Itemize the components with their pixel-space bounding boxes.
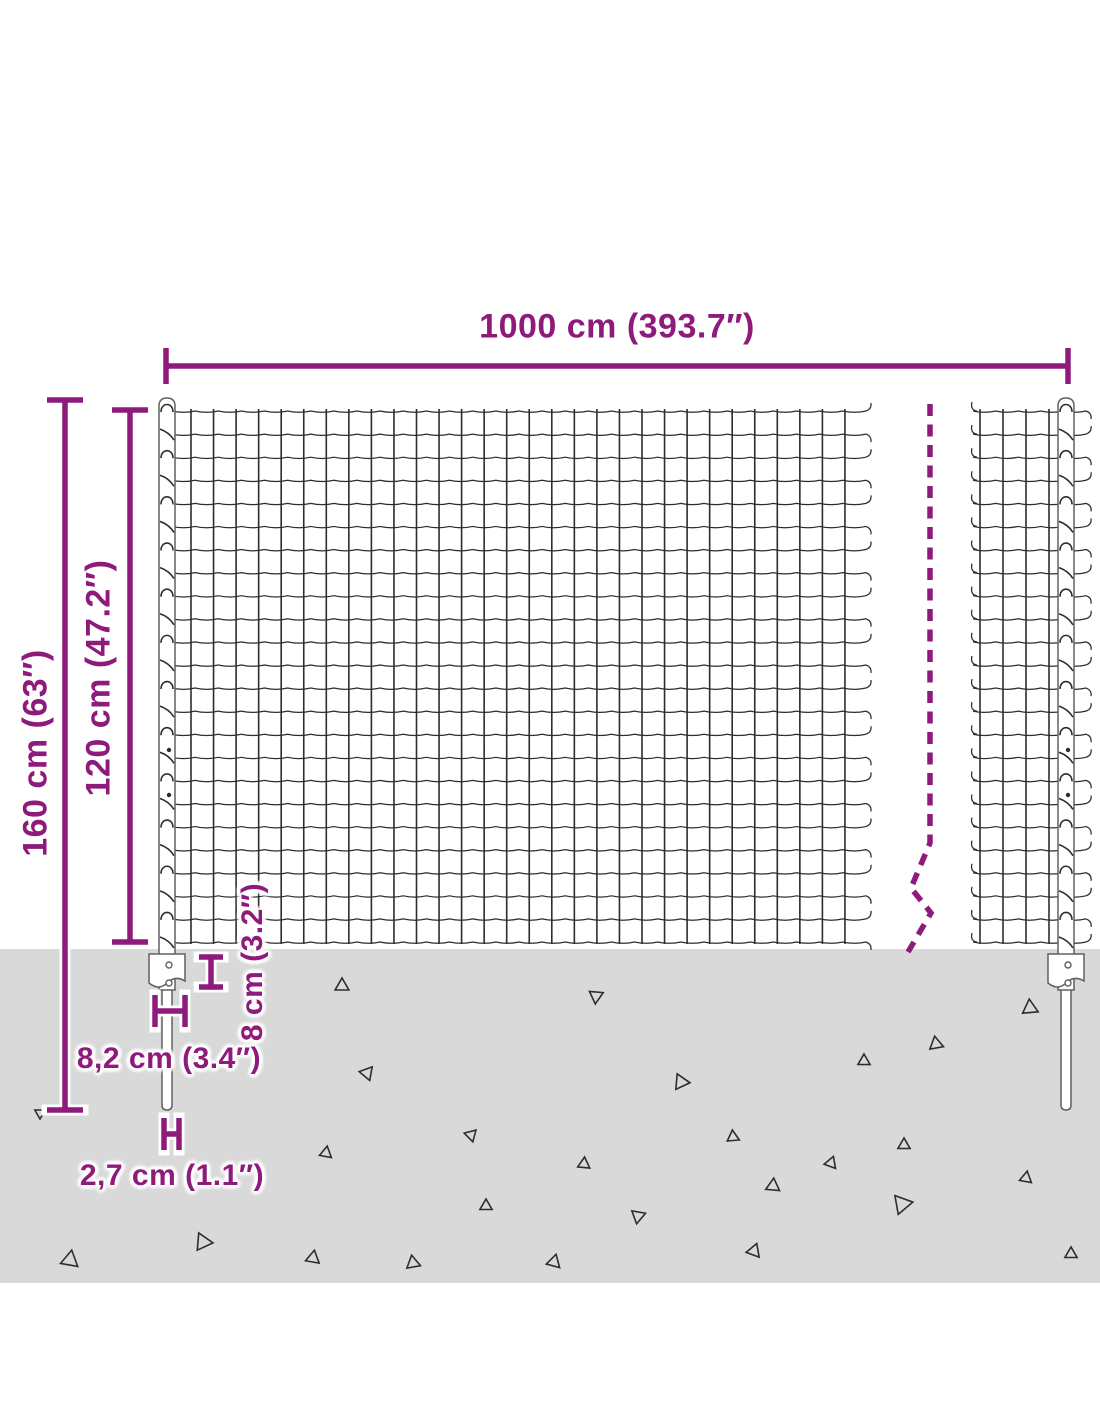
anchor-plate-hole [1065, 980, 1071, 986]
mesh-wire-horizontal [172, 588, 871, 597]
fence-dimension-diagram: 1000 cm (393.7″) 160 cm (63″) 120 cm (47… [0, 0, 1100, 1422]
anchor-plate-hole [166, 980, 172, 986]
diagram-drawing [0, 0, 1100, 1422]
post-hole-dot [1066, 748, 1070, 752]
post-hole-dot [1066, 793, 1070, 797]
mesh-wire-horizontal [172, 573, 871, 581]
fence-post [1058, 398, 1074, 990]
mesh-wire-horizontal [172, 403, 871, 412]
anchor-plate-hole [1065, 962, 1071, 968]
mesh-wire-horizontal [172, 850, 871, 858]
mesh-wire-horizontal [172, 942, 871, 950]
mesh-wire-horizontal [172, 665, 871, 673]
mesh-wire-horizontal [172, 896, 871, 904]
post-hole-dot [167, 793, 171, 797]
anchor-plate-hole [166, 962, 172, 968]
mesh-wire-horizontal [172, 911, 871, 920]
mesh-wire-horizontal [172, 757, 871, 765]
mesh-wire-horizontal [172, 434, 871, 442]
mesh-wire-horizontal [172, 495, 871, 504]
mesh-wire-horizontal [172, 711, 871, 719]
post-ground-spike [1061, 982, 1071, 1110]
dim-label-anchor-plate-height: 8 cm (3.2″) [236, 883, 270, 1041]
mesh-wire-horizontal [172, 772, 871, 781]
mesh-wire-horizontal [172, 726, 871, 735]
mesh-wire-horizontal [172, 803, 871, 811]
dim-label-total-height: 160 cm (63″) [17, 649, 56, 857]
mesh-wire-horizontal [172, 634, 871, 643]
post-hole-dot [167, 748, 171, 752]
dim-label-total-width: 1000 cm (393.7″) [479, 308, 755, 347]
mesh-wire-horizontal [172, 819, 871, 828]
dim-label-spike-width: 2,7 cm (1.1″) [80, 1159, 264, 1193]
mesh-wire-horizontal [172, 619, 871, 627]
mesh-wire-horizontal [172, 542, 871, 551]
dim-label-mesh-height: 120 cm (47.2″) [80, 560, 119, 797]
break-line [908, 404, 931, 952]
mesh-wire-horizontal [172, 526, 871, 534]
dim-label-anchor-plate-width: 8,2 cm (3.4″) [77, 1042, 261, 1076]
mesh-wire-horizontal [172, 865, 871, 874]
mesh-wire-horizontal [172, 680, 871, 689]
mesh-wire-horizontal [172, 480, 871, 488]
mesh-wire-horizontal [172, 449, 871, 458]
fence-post [159, 398, 175, 990]
